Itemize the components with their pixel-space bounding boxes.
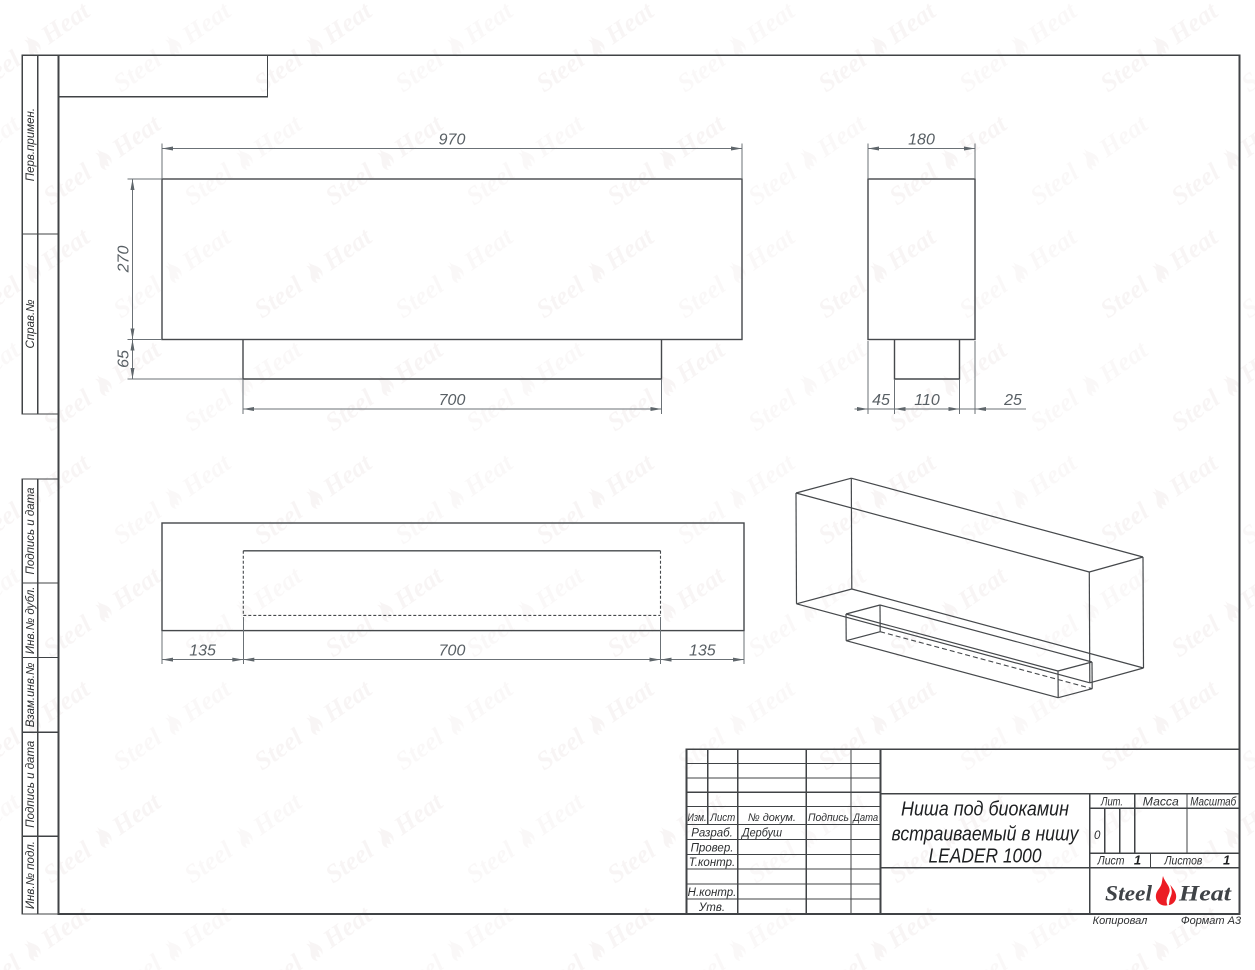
svg-text:LEADER 1000: LEADER 1000 <box>929 846 1042 868</box>
svg-text:Инв.№ дубл.: Инв.№ дубл. <box>25 587 37 655</box>
svg-text:970: 970 <box>439 132 466 149</box>
svg-text:135: 135 <box>189 643 216 660</box>
svg-text:700: 700 <box>439 643 466 660</box>
svg-text:45: 45 <box>872 392 890 409</box>
svg-text:№ докум.: № докум. <box>748 812 796 824</box>
svg-text:Ниша под биокамин: Ниша под биокамин <box>901 799 1069 821</box>
svg-text:Т.контр.: Т.контр. <box>689 857 735 869</box>
svg-text:25: 25 <box>1003 392 1022 409</box>
svg-text:Копировал: Копировал <box>1093 915 1148 927</box>
svg-text:Справ.№: Справ.№ <box>25 299 37 349</box>
svg-text:Дата: Дата <box>851 812 878 824</box>
svg-text:180: 180 <box>908 132 935 149</box>
svg-text:110: 110 <box>914 392 940 409</box>
svg-text:1: 1 <box>1134 853 1141 868</box>
svg-text:135: 135 <box>689 643 716 660</box>
svg-text:Лист: Лист <box>709 812 735 824</box>
svg-text:Инв.№ подл.: Инв.№ подл. <box>25 841 37 909</box>
svg-text:Провер.: Провер. <box>691 843 734 855</box>
svg-text:Листов: Листов <box>1163 856 1202 868</box>
svg-text:1: 1 <box>1223 853 1230 868</box>
svg-text:700: 700 <box>439 392 466 409</box>
svg-text:Перв.примен.: Перв.примен. <box>25 108 37 181</box>
svg-text:Дербуш: Дербуш <box>740 828 782 840</box>
svg-text:0: 0 <box>1094 830 1101 842</box>
svg-text:Масса: Масса <box>1143 796 1179 808</box>
svg-text:Разраб.: Разраб. <box>691 828 733 840</box>
svg-text:270: 270 <box>116 246 133 274</box>
svg-text:Steel: Steel <box>1105 881 1153 906</box>
svg-text:65: 65 <box>116 350 133 368</box>
svg-text:Heat: Heat <box>1178 881 1232 906</box>
svg-text:Взам.инв.№: Взам.инв.№ <box>25 662 37 727</box>
svg-text:Изм.: Изм. <box>688 812 707 824</box>
svg-text:Лист: Лист <box>1097 856 1125 868</box>
svg-text:Подпись и дата: Подпись и дата <box>25 488 37 575</box>
svg-text:Н.контр.: Н.контр. <box>688 887 737 899</box>
svg-text:Подпись: Подпись <box>808 812 849 824</box>
svg-text:Лит.: Лит. <box>1100 796 1123 808</box>
svg-text:Масштаб: Масштаб <box>1190 796 1236 808</box>
svg-text:Формат А3: Формат А3 <box>1181 915 1242 927</box>
svg-text:Подпись и дата: Подпись и дата <box>25 741 37 828</box>
svg-text:встраиваемый в нишу: встраиваемый в нишу <box>892 824 1080 846</box>
svg-text:Утв.: Утв. <box>698 902 725 914</box>
